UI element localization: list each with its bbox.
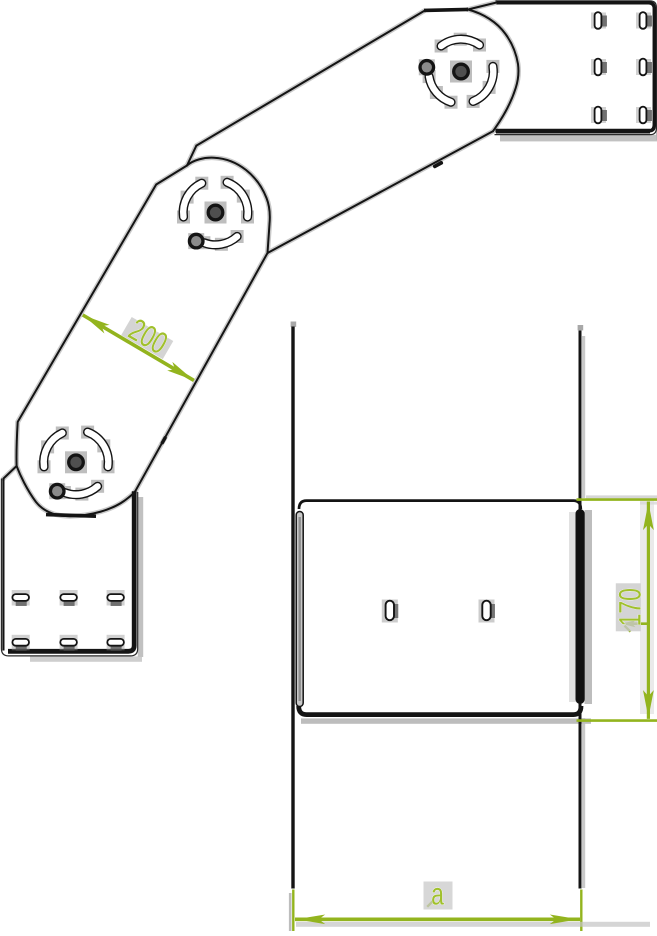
svg-text:170: 170 [612, 588, 647, 626]
svg-text:a: a [431, 877, 444, 912]
